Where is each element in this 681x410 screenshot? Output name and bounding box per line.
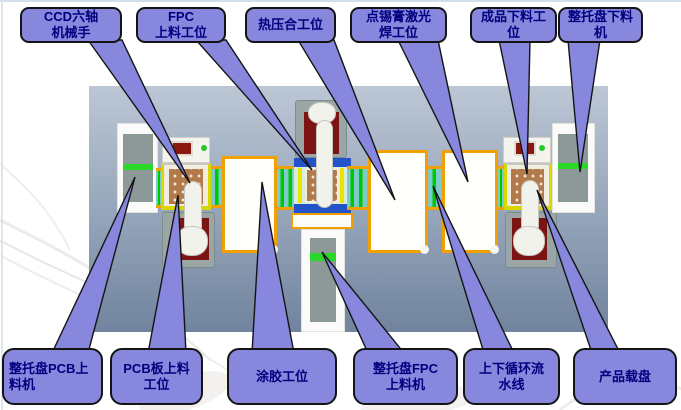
callout-finished-product-unloading-station: 成品下料工 位 [470,7,557,43]
pointer-solder-paste-laser-welding-station [398,40,468,182]
callout-ccd-six-axis-robot: CCD六轴 机械手 [20,7,122,43]
pointer-pcb-loading-station [148,195,186,353]
pointer-fpc-loading-station [196,40,312,170]
callout-fpc-loading-station: FPC 上料工位 [136,7,226,43]
pointer-updown-circulating-conveyor [433,186,514,353]
callout-glue-coating-station: 涂胶工位 [227,348,337,405]
pointer-fpc-tray-loading-machine [322,252,404,353]
pointer-glue-coating-station [252,182,294,353]
callout-fpc-tray-loading-machine: 整托盘FPC 上料机 [353,348,458,405]
callout-hot-press-station: 热压合工位 [245,7,336,43]
callout-tray-unloading-machine: 整托盘下料 机 [558,7,643,43]
callout-pcb-tray-loading-machine: 整托盘PCB上 料机 [2,348,103,405]
callout-product-carrier-tray: 产品载盘 [573,348,677,405]
callout-pcb-loading-station: PCB板上料 工位 [110,348,203,405]
callout-solder-paste-laser-welding-station: 点锡膏激光 焊工位 [350,7,447,43]
pointer-pcb-tray-loading-machine [52,177,135,353]
pointer-hot-press-station [298,40,395,200]
pointer-finished-product-unloading-station [499,40,530,174]
slide: CCD六轴 机械手 FPC 上料工位 热压合工位 点锡膏激光 焊工位 成品下料工… [0,0,681,410]
pointer-product-carrier-tray [537,190,620,353]
callout-updown-circulating-conveyor: 上下循环流 水线 [463,348,560,405]
pointer-ccd-six-axis-robot [88,40,190,183]
pointer-tray-unloading-machine [568,40,600,172]
